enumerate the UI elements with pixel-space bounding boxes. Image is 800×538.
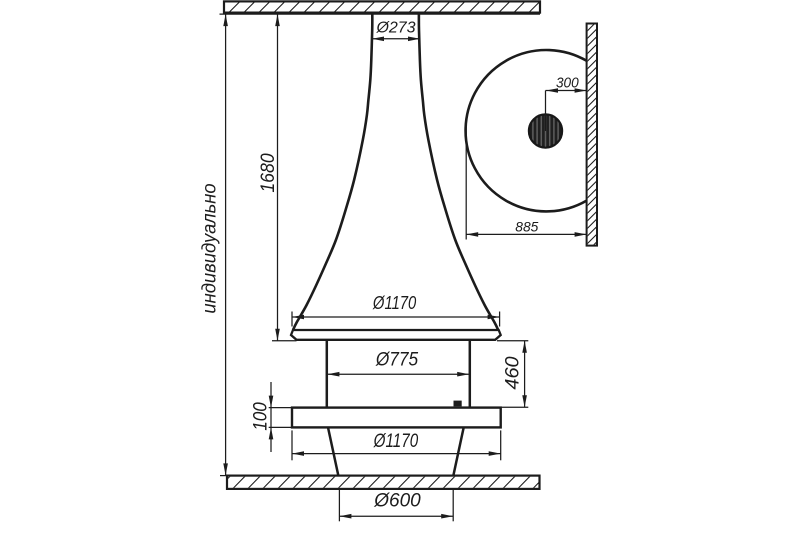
svg-text:460: 460 <box>502 356 523 389</box>
svg-text:Ø600: Ø600 <box>373 491 421 512</box>
svg-text:885: 885 <box>515 220 538 235</box>
svg-text:100: 100 <box>250 402 271 431</box>
svg-text:Ø1170: Ø1170 <box>373 429 419 451</box>
svg-text:300: 300 <box>556 75 579 92</box>
svg-text:Ø273: Ø273 <box>375 20 415 37</box>
svg-text:Ø1170: Ø1170 <box>372 292 417 313</box>
svg-text:Ø775: Ø775 <box>375 349 419 370</box>
svg-text:индивидуально: индивидуально <box>198 183 219 313</box>
svg-text:1680: 1680 <box>256 153 278 193</box>
